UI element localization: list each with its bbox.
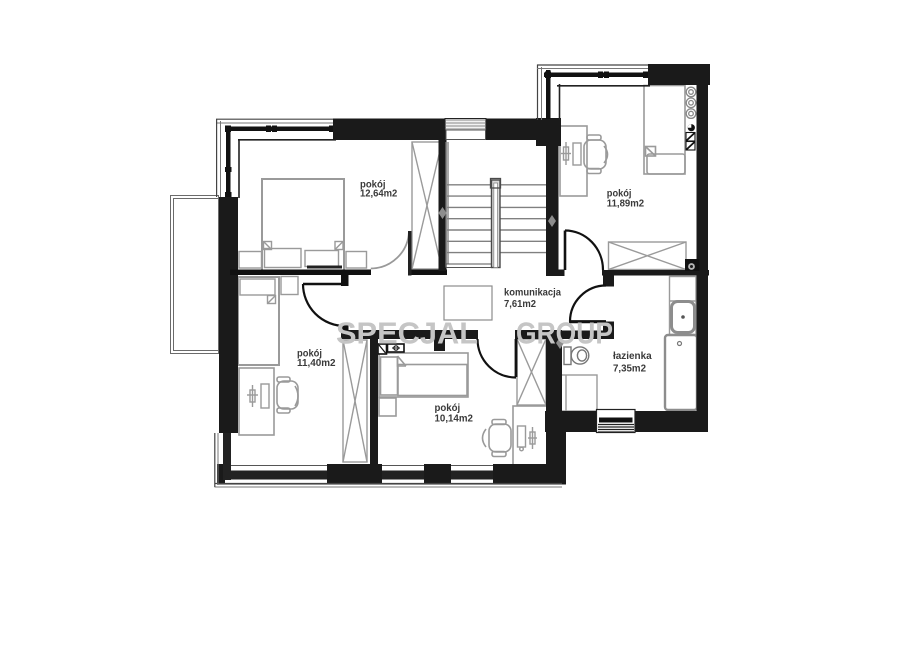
svg-text:11,89m2: 11,89m2 [607, 198, 644, 209]
svg-text:SPECJAL: SPECJAL [336, 316, 478, 351]
svg-text:11,40m2: 11,40m2 [297, 358, 336, 369]
svg-text:pokój: pokój [435, 403, 461, 414]
svg-text:7,35m2: 7,35m2 [613, 363, 646, 374]
svg-text:łazienka: łazienka [613, 351, 652, 362]
svg-text:komunikacja: komunikacja [504, 288, 561, 299]
svg-text:12,64m2: 12,64m2 [360, 189, 397, 200]
svg-text:7,61m2: 7,61m2 [504, 299, 536, 310]
svg-text:10,14m2: 10,14m2 [435, 413, 474, 424]
svg-text:GROUP: GROUP [516, 316, 613, 351]
